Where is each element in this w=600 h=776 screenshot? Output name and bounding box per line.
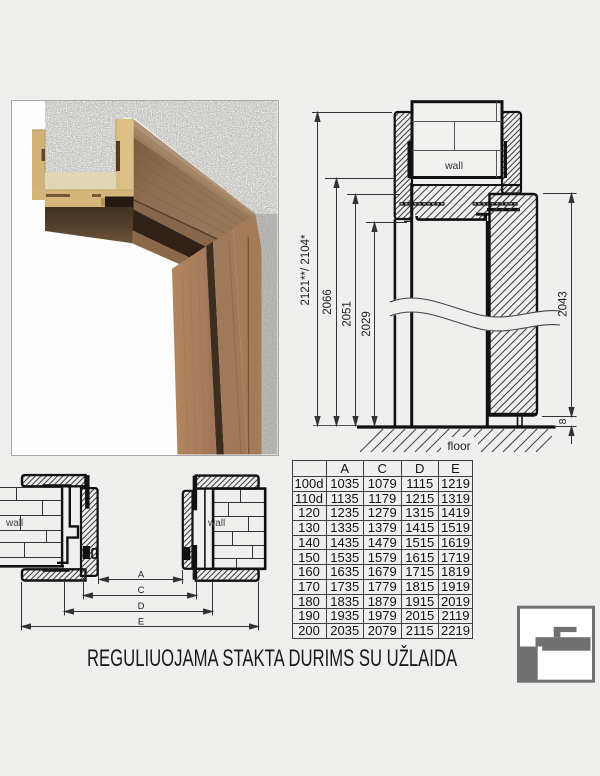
svg-text:2029: 2029 [361,311,373,337]
svg-text:2121**/ 2104*: 2121**/ 2104* [300,234,312,306]
svg-text:8: 8 [557,418,569,424]
svg-text:D: D [138,601,145,612]
svg-text:E: E [138,617,144,628]
svg-text:floor: floor [447,439,470,453]
svg-text:2043: 2043 [558,291,570,317]
svg-text:wall: wall [207,518,225,529]
svg-text:wall: wall [5,518,23,529]
svg-text:wall: wall [444,160,463,172]
svg-text:2066: 2066 [322,289,334,315]
svg-text:2051: 2051 [342,301,354,327]
svg-text:C: C [138,585,145,596]
svg-text:A: A [138,570,145,581]
